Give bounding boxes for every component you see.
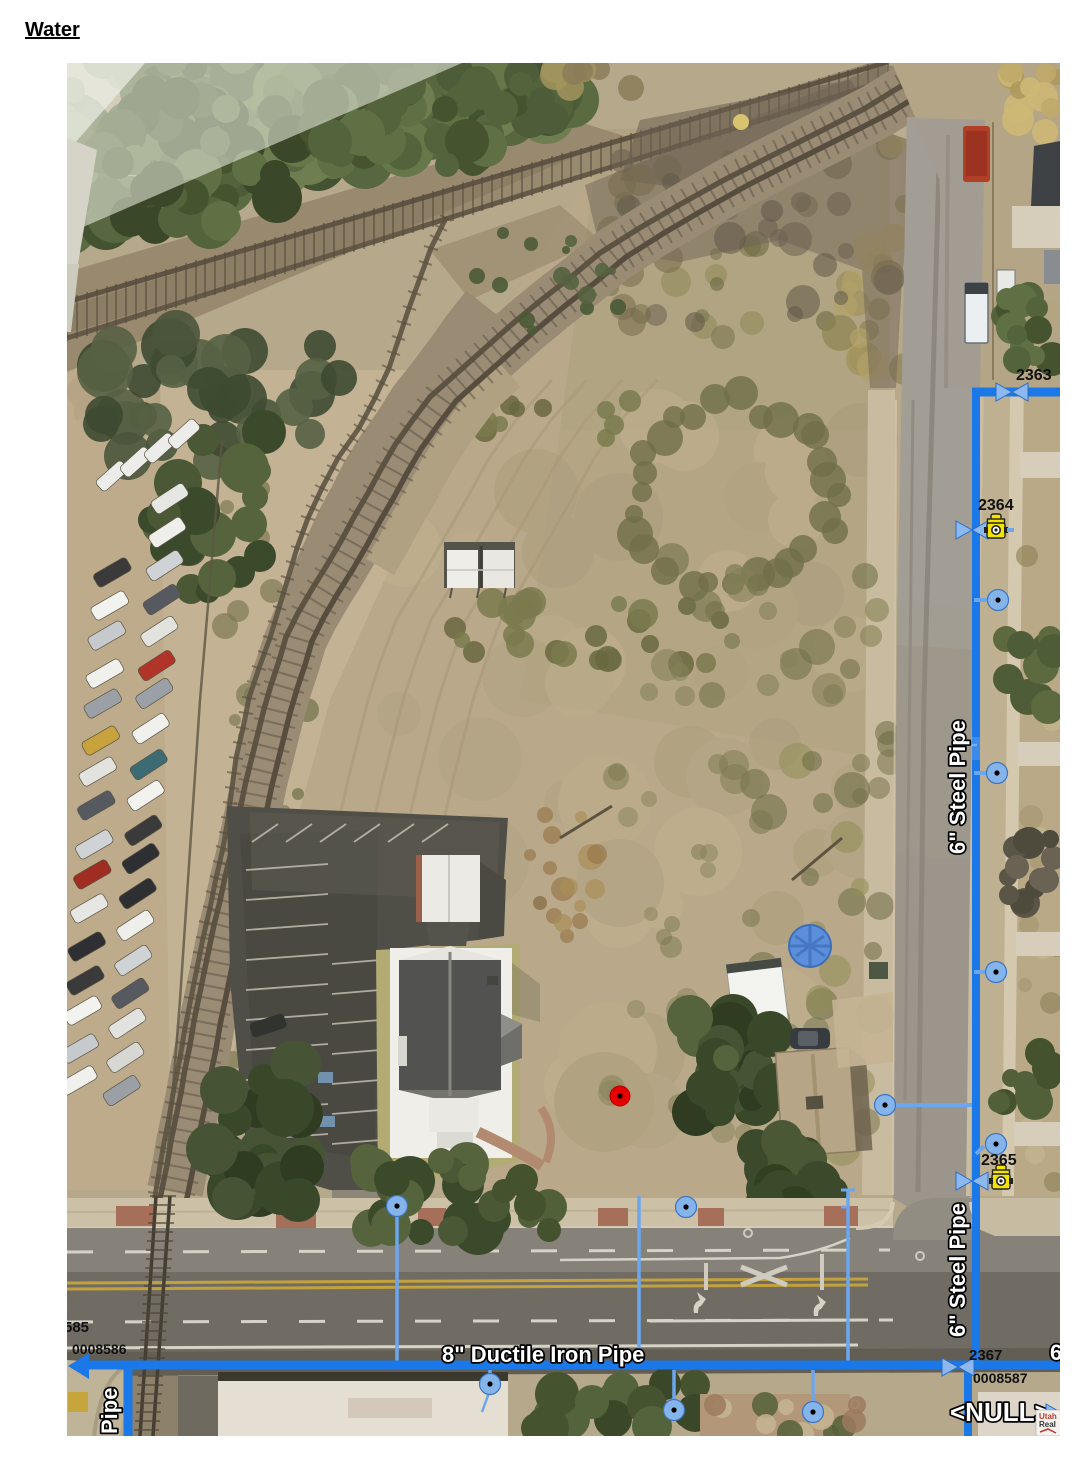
svg-text:0008587: 0008587	[973, 1370, 1028, 1386]
svg-text:Pipe: Pipe	[97, 1388, 122, 1434]
svg-text:Real: Real	[1039, 1420, 1056, 1429]
svg-text:0008586: 0008586	[72, 1341, 127, 1357]
svg-text:2365: 2365	[981, 1152, 1017, 1169]
svg-text:6" Steel Pipe: 6" Steel Pipe	[945, 720, 970, 854]
svg-text:2363: 2363	[1016, 367, 1052, 384]
svg-text:<NULL>: <NULL>	[950, 1397, 1050, 1427]
svg-text:8" Ductile Iron Pipe: 8" Ductile Iron Pipe	[442, 1342, 644, 1367]
svg-text:6" Steel Pipe: 6" Steel Pipe	[945, 1203, 970, 1337]
svg-text:2364: 2364	[978, 497, 1014, 514]
svg-text:585: 585	[67, 1319, 89, 1336]
svg-text:2367: 2367	[969, 1347, 1002, 1364]
svg-text:6: 6	[1050, 1340, 1060, 1365]
